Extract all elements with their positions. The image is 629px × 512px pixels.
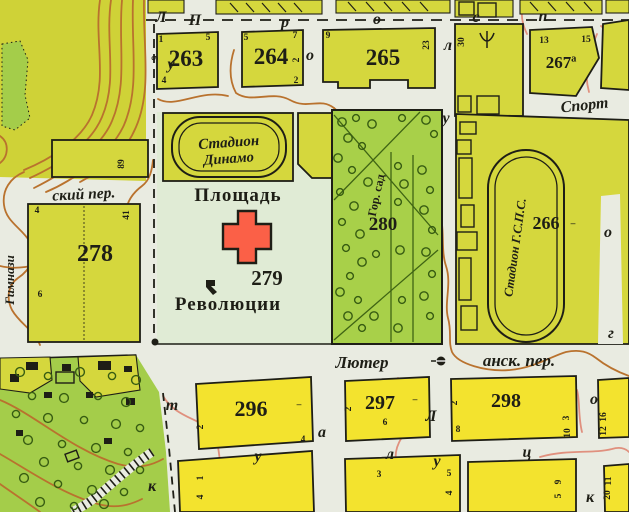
block-south-c [468,459,576,512]
letters-label-т: т [166,397,178,414]
letters-label-у: у [431,453,441,470]
letters-label-ц: ц [523,444,532,461]
corners-label-6: 6 [38,290,43,300]
corners-label-12: 12 [599,426,609,436]
block-number-265: 265 [366,45,401,70]
corners-label-2: 2 [294,76,299,86]
letters-label-л: л [385,446,394,463]
corners-label-3: 3 [377,470,382,480]
corners-label-5: 5 [206,33,211,43]
corners-label-5: 5 [554,493,564,498]
corners-label-13: 13 [539,36,549,46]
corners-label-30: 30 [457,37,467,47]
letters-label-о: о [604,224,612,241]
street-name-skiy-per: ский пер. [52,184,116,204]
letters-label-Л: Л [425,408,438,425]
letters-label-П: П [188,12,202,29]
block-strip [606,0,629,13]
letters-label-п: п [539,8,548,25]
block-south-d [604,464,629,512]
corners-label-9: 9 [151,55,161,60]
city-map: 263264265267ª278279280266296297298159457… [0,0,629,512]
block-south-b [345,455,460,512]
corners-label-4: 4 [445,490,455,495]
letters-label-о: о [373,11,381,28]
letters-label-у: у [440,110,450,127]
contour-line [158,94,228,101]
letters-label-о: о [306,47,314,64]
corners-label-89: 89 [117,159,127,169]
corners-label-3: 3 [562,415,572,420]
block-number-266: 266 [533,213,560,233]
corners-label-7: 7 [293,31,298,41]
street-name-gimnazi: Гимнази [2,255,17,306]
corners-label-4: 4 [162,76,167,86]
letters-label-с: с [472,9,479,26]
block-number-264: 264 [254,44,289,69]
corners-label-16: 16 [599,412,609,422]
corners-label-1: 1 [196,475,206,480]
corners-label-9: 9 [326,31,331,41]
letters-label-а: а [318,424,326,441]
corners-label-11: 11 [604,476,614,485]
map-canvas: 263264265267ª278279280266296297298159457… [0,0,629,512]
olive-patch-east-of-stadium [298,113,332,178]
corners-label-2: 2 [344,406,354,411]
corners-label-41: 41 [122,210,132,220]
corners-label-9: 9 [554,479,564,484]
letters-label-о: о [590,391,598,408]
street-east [598,194,623,344]
corners-label-2: 2 [196,424,206,429]
block-number-267a: 267ª [546,53,577,72]
letters-label-к: к [586,489,595,506]
shrub-patch [2,41,30,130]
corners-label-20: 20 [603,490,613,500]
corners-label-2: 2 [450,400,460,405]
block-89 [52,140,148,177]
block-number-298: 298 [491,390,521,412]
block-278 [28,204,140,342]
letters-label-к: к [148,478,157,495]
block-south-a [178,451,314,512]
letters-label-л: л [443,37,452,54]
corners-label-15: 15 [581,35,591,45]
corners-label-4: 4 [196,494,206,499]
corners-label-10: 10 [563,428,573,438]
block-strip [216,0,322,14]
boundary-dot [152,339,159,346]
block-number-297: 297 [365,392,395,414]
block-strip [336,0,450,13]
corners-label-–: – [296,400,302,410]
letters-label-р: р [279,14,289,31]
letters-label-Л: Л [155,9,168,26]
street-name-ansk-per: анск. пер. [483,351,555,370]
label-ploshchad: Площадь [194,185,281,206]
block-number-279: 279 [251,266,283,290]
corners-label-23: 23 [422,40,432,50]
letters-label-г: г [608,325,614,342]
letters-label-у: у [165,56,175,73]
block-strip [520,0,602,14]
corners-label-1: 1 [159,35,164,45]
corners-label-4: 4 [35,206,40,216]
letters-label-у: у [252,448,262,465]
corners-label-–: – [412,395,418,405]
block-number-296: 296 [235,396,268,421]
street-name-lyuter: Лютер [334,353,388,372]
corners-label-–: – [570,219,576,229]
street-name-sport: Спорт [560,95,609,117]
corners-label-4: 4 [301,435,306,445]
corners-label-6: 6 [383,418,388,428]
corners-label-2: 2 [292,57,302,62]
corners-label-5: 5 [447,469,452,479]
contour-line [540,448,629,457]
label-revolyutsii: Революции [175,294,281,315]
block-ne-sliver [601,20,629,90]
corners-label-5: 5 [244,33,249,43]
corners-label-8: 8 [456,425,461,435]
block-number-278: 278 [77,241,113,267]
